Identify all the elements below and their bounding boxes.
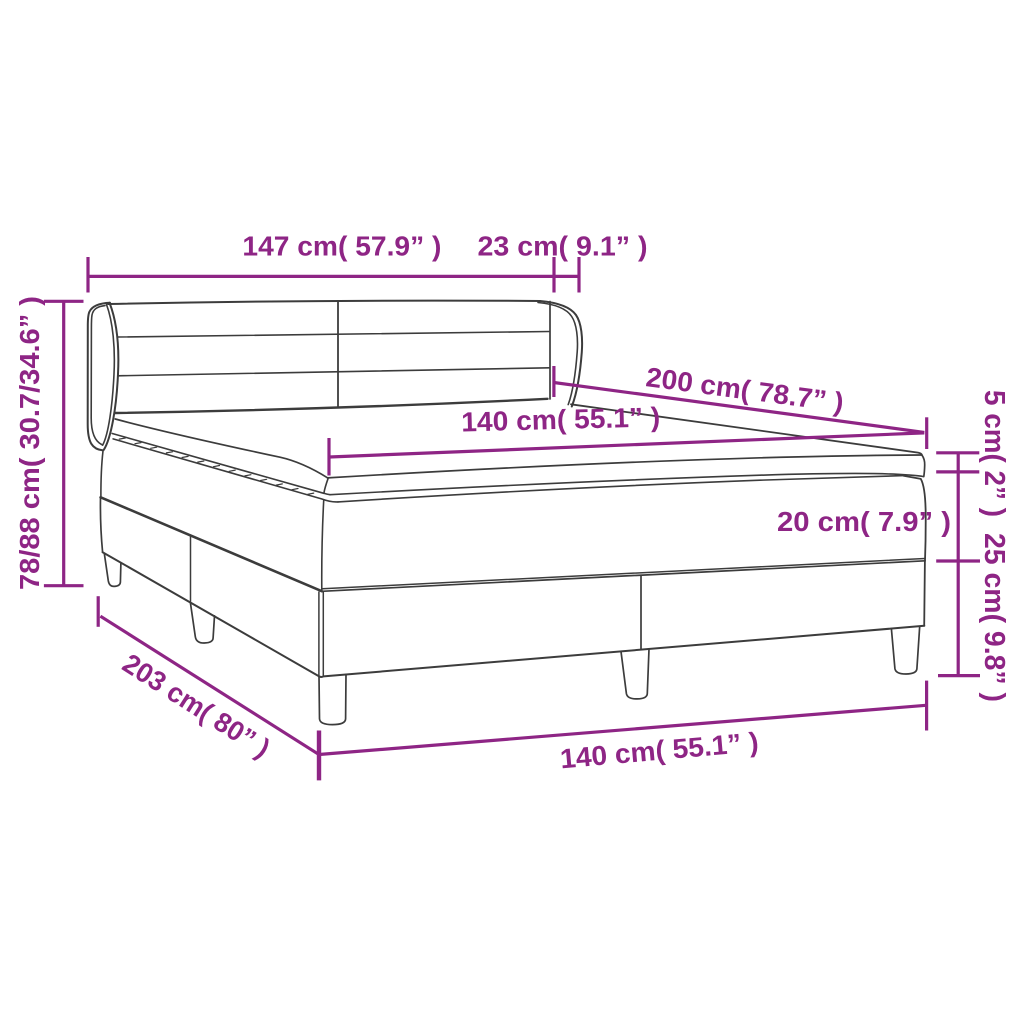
svg-text:78/88 cm( 30.7/34.6” ): 78/88 cm( 30.7/34.6” )	[14, 296, 45, 590]
svg-text:25 cm( 9.8” ): 25 cm( 9.8” )	[978, 533, 1010, 702]
svg-text:20 cm( 7.9” ): 20 cm( 7.9” )	[777, 506, 951, 537]
svg-text:5 cm( 2” ): 5 cm( 2” )	[978, 390, 1010, 517]
svg-text:140 cm( 55.1” ): 140 cm( 55.1” )	[461, 401, 661, 437]
svg-text:147 cm( 57.9” ): 147 cm( 57.9” )	[242, 230, 441, 261]
svg-text:23 cm( 9.1” ): 23 cm( 9.1” )	[478, 230, 648, 261]
